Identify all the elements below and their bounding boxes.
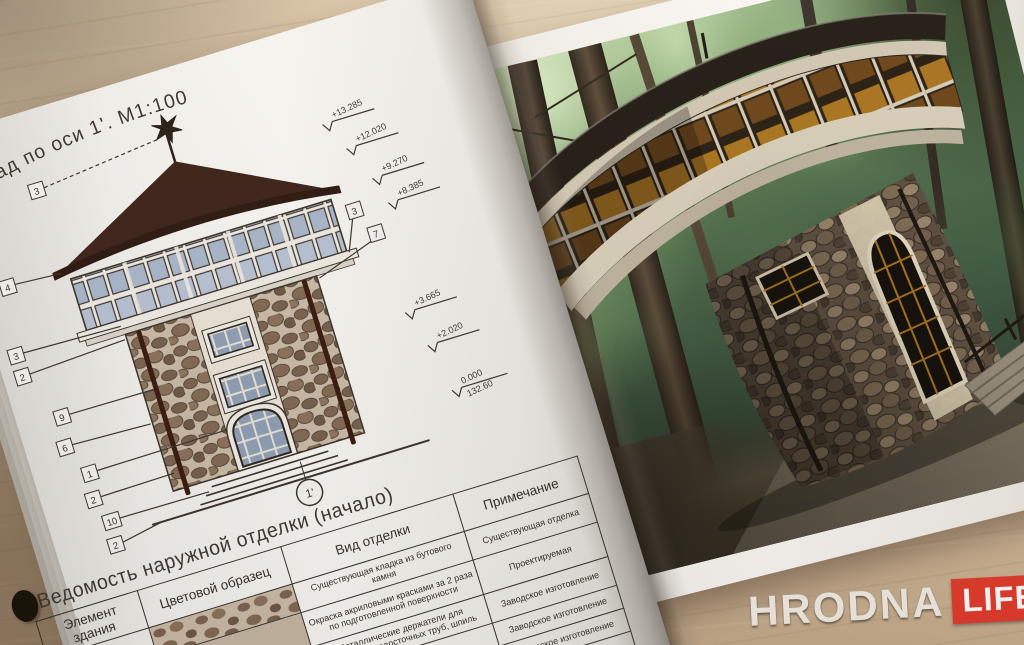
plaster-pilaster [837,191,975,425]
render-cornice [534,70,977,313]
arched-window [860,225,967,401]
svg-text:+3.665: +3.665 [412,287,441,308]
tree-trunk [953,0,1024,423]
photo-of-project-album: Фасад по оси 1'. М1:100 [0,0,1024,645]
body-shading [699,237,884,495]
spire [697,33,711,58]
svg-text:+2.020: +2.020 [435,320,464,341]
tree-trunk [686,20,735,218]
stair-steps [960,311,1024,411]
svg-text:+8.385: +8.385 [396,177,425,198]
tree-trunk [630,33,724,297]
tower-ground-shadow [711,360,1024,547]
tree-trunk [799,0,838,149]
tree-branch [534,53,637,118]
entrance-stairs [952,300,1024,421]
logo-life-badge: LIFE [951,574,1024,624]
arched-window-grid [862,227,966,399]
downpipe [899,185,990,390]
star-finial [149,111,190,167]
logo-brand-text: HRODNA [747,578,946,636]
downpipe [738,276,821,473]
stair-railing [951,290,1024,370]
render-cornice-lower [553,95,974,322]
tree-trunk [905,0,947,230]
tree-branch [630,130,720,138]
square-window [757,254,827,319]
stone-body [693,168,1019,497]
svg-text:+9.270: +9.270 [380,153,409,174]
